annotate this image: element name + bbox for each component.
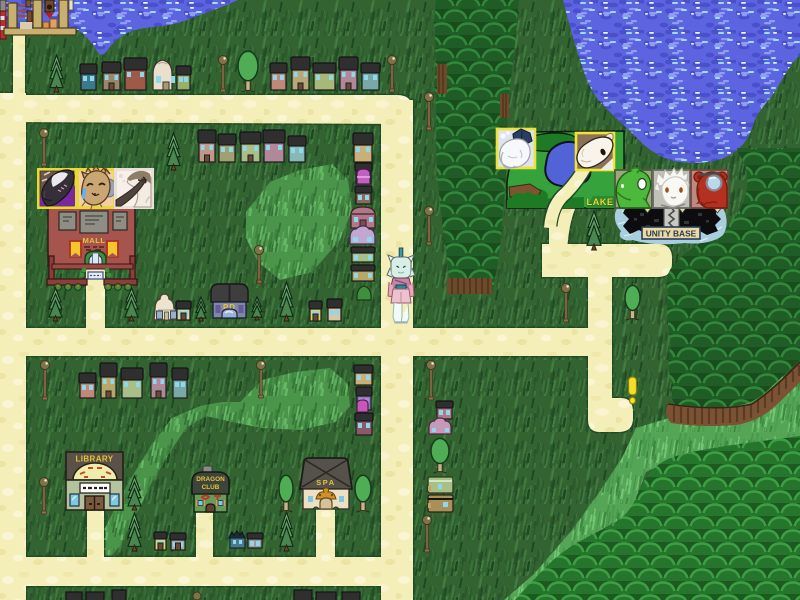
svg-text:SPA: SPA xyxy=(316,478,335,487)
svg-text:UNITY BASE: UNITY BASE xyxy=(646,229,697,239)
svg-text:LIBRARY: LIBRARY xyxy=(75,455,113,464)
svg-text:MALL: MALL xyxy=(82,236,105,245)
svg-text:DRAGON: DRAGON xyxy=(196,476,225,483)
svg-text:LAKE: LAKE xyxy=(586,196,613,207)
svg-text:CLUB: CLUB xyxy=(202,484,220,491)
